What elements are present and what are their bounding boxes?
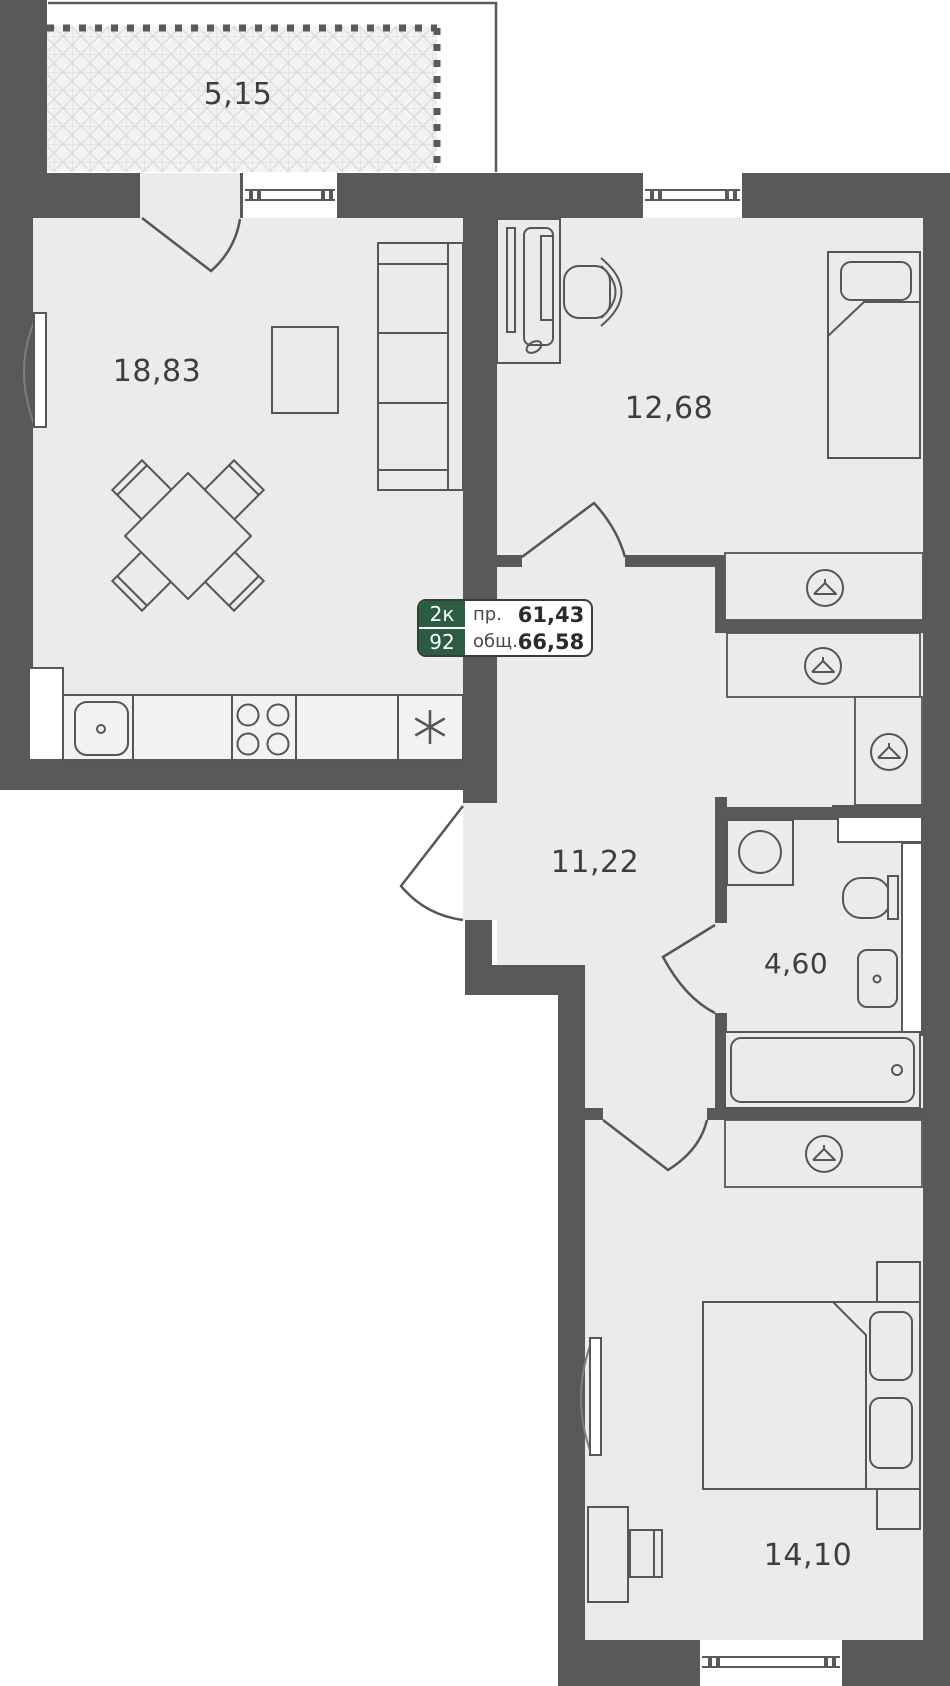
floor-plan-drawing [0,0,950,1686]
unit-living-area-row: пр. 61,43 [465,601,593,628]
dining-set [112,460,263,610]
wardrobe [727,633,920,697]
room-area-label-living-room: 18,83 [82,354,232,389]
desk-with-computer [497,219,560,363]
window-living-room [243,173,337,218]
toilet [843,876,898,919]
desk-chair [630,1530,662,1577]
living-area-value: 61,43 [518,603,584,627]
room-area-label-bedroom-bottom: 14,10 [733,1538,883,1573]
desk [588,1507,628,1602]
room-area-label-balcony: 5,15 [163,77,313,112]
window-bedroom-top [643,173,742,218]
entrance-door-arc [401,806,463,920]
nightstand [877,1489,920,1529]
nightstand [877,1262,920,1302]
kitchen [63,695,463,760]
unit-total-area-row: общ. 66,58 [465,628,593,655]
wardrobe [725,1120,922,1187]
unit-badge-areas: пр. 61,43 общ. 66,58 [465,601,593,655]
total-area-value: 66,58 [518,630,584,654]
unit-info-badge: 2к 92 пр. 61,43 общ. 66,58 [417,599,593,657]
wardrobe [725,553,923,620]
unit-rooms-label: 2к [419,601,465,627]
unit-badge-green-column: 2к 92 [419,601,465,655]
window-bedroom-bottom [700,1640,842,1686]
single-bed [828,252,920,458]
floor-plan: 5,15 18,83 12,68 11,22 4,60 14,10 2к 92 … [0,0,950,1686]
bathroom-sink [858,950,897,1007]
shaft-bathroom-top [838,817,922,842]
wardrobe [855,697,922,805]
room-area-label-bedroom-top: 12,68 [594,391,744,426]
double-bed [703,1302,920,1489]
room-area-label-bathroom: 4,60 [736,947,856,980]
shaft-bathroom-side [902,843,922,1035]
unit-number-label: 92 [419,629,465,655]
living-area-key: пр. [473,604,502,625]
sofa [378,243,463,490]
washing-machine [727,820,793,885]
shaft-kitchen [29,668,63,760]
room-area-label-hallway: 11,22 [520,845,670,880]
total-area-key: общ. [473,631,518,652]
bathtub [725,1032,920,1108]
